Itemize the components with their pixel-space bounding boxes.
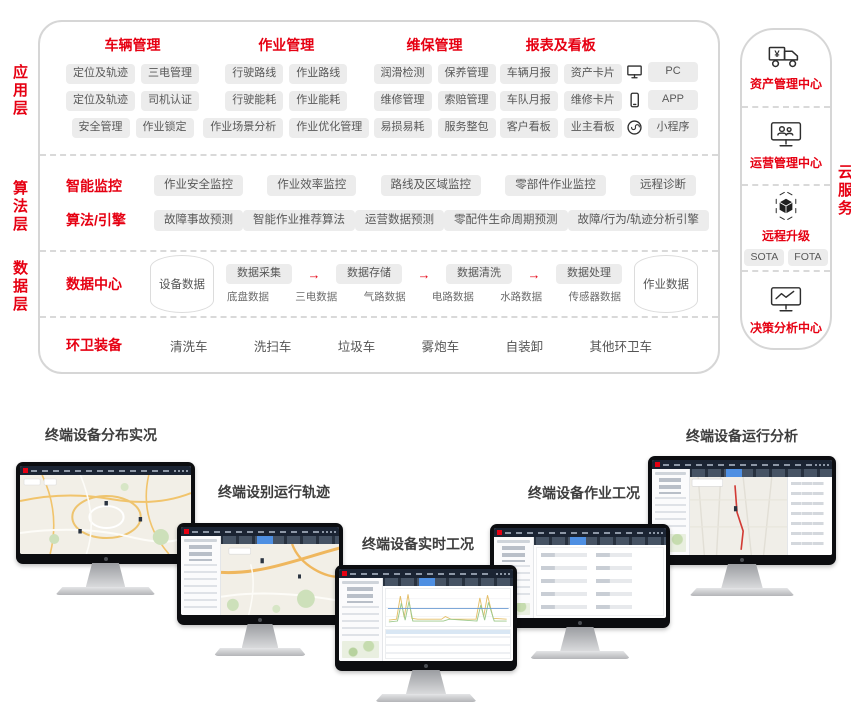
bezel-logo-dot xyxy=(258,618,262,622)
monitor-chart-icon xyxy=(768,285,804,314)
equipment-items: 清洗车 洗扫车 垃圾车 雾炮车 自装卸 其他环卫车 xyxy=(170,336,652,355)
feature-chip: 定位及轨迹 xyxy=(66,91,135,111)
screen-main xyxy=(383,578,514,661)
equipment-item: 清洗车 xyxy=(170,336,208,355)
algo-chip: 作业效率监控 xyxy=(267,175,356,196)
flow-chip: 数据存储 xyxy=(336,264,402,284)
algo-chip: 零部件作业监控 xyxy=(505,175,606,196)
feature-chip: 维修卡片 xyxy=(564,91,622,111)
feature-chip: 车队月报 xyxy=(500,91,558,111)
screen-main xyxy=(690,469,832,555)
monitor-users-icon xyxy=(768,120,804,149)
algo-chips: 故障事故预测 智能作业推荐算法 运营数据预测 零配件生命周期预测 故障/行为/轨… xyxy=(154,210,709,231)
feature-chip: 作业能耗 xyxy=(289,91,347,111)
device-row-app: APP xyxy=(626,90,698,110)
cube-icon xyxy=(769,190,803,222)
algo-chip: 故障/行为/轨迹分析引擎 xyxy=(568,210,709,231)
logo-mark xyxy=(497,530,502,535)
device-row-miniapp: 小程序 xyxy=(626,118,698,138)
screen-navbar xyxy=(20,466,191,475)
app-group-reports: 报表及看板 车辆月报资产卡片 车队月报维修卡片 客户看板业主看板 xyxy=(500,35,622,154)
feature-chip: 索赔管理 xyxy=(438,91,496,111)
menu-placeholder xyxy=(663,464,812,466)
feature-chip: 保养管理 xyxy=(438,64,496,84)
feature-chip: 车辆月报 xyxy=(500,64,558,84)
monitor-screen xyxy=(494,528,666,618)
app-group-maintenance: 维保管理 润滑检测保养管理 维修管理索赔管理 易损易耗服务整包 xyxy=(374,35,496,154)
data-table-placeholder xyxy=(385,629,512,659)
algo-chips: 作业安全监控 作业效率监控 路线及区域监控 零部件作业监控 远程诊断 xyxy=(154,175,696,196)
monitor-run-track xyxy=(177,523,343,656)
feature-chip: 作业路线 xyxy=(289,64,347,84)
menu-placeholder xyxy=(192,531,319,533)
screen-tabs xyxy=(690,469,832,477)
layer-label-data: 数据层 xyxy=(9,260,30,314)
map-graphic xyxy=(221,544,340,615)
detail-form-placeholder xyxy=(536,547,664,616)
sidebar-title-placeholder xyxy=(655,472,686,475)
monitor-bezel xyxy=(490,524,670,628)
device-chip: APP xyxy=(648,90,698,110)
sidebar-minimap xyxy=(342,641,379,658)
monitor-screen xyxy=(339,569,513,661)
algo-chip: 零配件生命周期预测 xyxy=(444,210,568,231)
bezel-logo-dot xyxy=(740,558,744,562)
pc-icon xyxy=(626,64,643,79)
row-title: 环卫装备 xyxy=(66,335,138,355)
algo-chip: 作业安全监控 xyxy=(154,175,243,196)
menu-placeholder xyxy=(505,532,646,534)
logo-mark xyxy=(342,571,347,576)
flow-chips: 数据采集 → 数据存储 → 数据清洗 → 数据处理 xyxy=(226,264,622,284)
cloud-section-title: 决策分析中心 xyxy=(750,319,822,336)
feature-chip: 作业锁定 xyxy=(136,118,194,138)
algo-chip: 运营数据预测 xyxy=(355,210,444,231)
user-area-placeholder xyxy=(496,573,510,575)
monitor-caption: 终端设备作业工况 xyxy=(528,483,640,503)
feature-chip: 润滑检测 xyxy=(374,64,432,84)
data-panel-placeholder xyxy=(787,477,832,555)
device-chip: PC xyxy=(648,62,698,82)
signal-chart xyxy=(385,588,512,627)
feature-chip: 作业场景分析 xyxy=(203,118,283,138)
cloud-section-title: 资产管理中心 xyxy=(750,75,822,92)
data-flow: 数据采集 → 数据存储 → 数据清洗 → 数据处理 底盘数据 三电数据 气路数据… xyxy=(226,264,622,304)
algo-chip: 远程诊断 xyxy=(630,175,696,196)
user-area-placeholder xyxy=(815,464,829,466)
monitor-stand-base xyxy=(530,651,631,659)
data-source: 三电数据 xyxy=(295,289,337,304)
menu-placeholder xyxy=(350,573,493,575)
screen-main xyxy=(534,537,666,618)
app-group-operation: 作业管理 行驶路线作业路线 行驶能耗作业能耗 作业场景分析作业优化管理 xyxy=(203,35,369,154)
screen-navbar xyxy=(652,460,832,469)
track-map-graphic xyxy=(690,477,787,555)
flow-arrow-icon: → xyxy=(528,267,541,282)
phone-icon xyxy=(626,92,643,108)
chip-grid: 润滑检测保养管理 维修管理索赔管理 易损易耗服务整包 xyxy=(374,64,496,138)
group-title: 报表及看板 xyxy=(526,35,596,55)
user-area-placeholder xyxy=(174,470,188,472)
screen-tabs xyxy=(383,578,514,586)
feature-chip: 定位及轨迹 xyxy=(66,64,135,84)
algo-row-engine: 算法/引擎 故障事故预测 智能作业推荐算法 运营数据预测 零配件生命周期预测 故… xyxy=(66,210,696,231)
cloud-section-upgrade: 远程升级 SOTA FOTA xyxy=(742,184,830,270)
sidebar-grid-placeholder xyxy=(347,587,373,603)
row-title: 数据中心 xyxy=(66,274,138,294)
equipment-item: 洗扫车 xyxy=(254,336,292,355)
cloud-section-asset: ¥ 资产管理中心 xyxy=(742,30,830,106)
algo-chip: 路线及区域监控 xyxy=(381,175,482,196)
flow-chip: 数据处理 xyxy=(556,264,622,284)
screen-navbar xyxy=(339,569,513,578)
feature-chip: 易损易耗 xyxy=(374,118,432,138)
job-data-store: 作业数据 xyxy=(634,255,698,313)
feature-chip: 行驶路线 xyxy=(225,64,283,84)
main-split xyxy=(690,477,832,555)
screen-sidebar xyxy=(339,578,383,661)
algo-chip: 故障事故预测 xyxy=(154,210,243,231)
device-column: PC APP 小程序 xyxy=(626,62,698,154)
device-chip: 小程序 xyxy=(648,118,698,138)
sota-chip: SOTA xyxy=(744,249,784,266)
monitor-caption: 终端设别运行轨迹 xyxy=(218,482,330,502)
sidebar-title-placeholder xyxy=(497,540,530,543)
upgrade-chips: SOTA FOTA xyxy=(744,249,827,266)
monitor-bezel xyxy=(16,462,195,564)
architecture-panel: 车辆管理 定位及轨迹三电管理 定位及轨迹司机认证 安全管理作业锁定 作业管理 行… xyxy=(38,20,720,374)
equipment-item: 自装卸 xyxy=(506,336,544,355)
group-title: 作业管理 xyxy=(258,35,314,55)
monitor-screen xyxy=(652,460,832,555)
monitor-track-analysis xyxy=(648,456,836,596)
sidebar-lines-placeholder xyxy=(184,564,217,612)
monitor-stand-base xyxy=(375,694,477,702)
row-title: 智能监控 xyxy=(66,176,142,196)
feature-chip: 行驶能耗 xyxy=(225,91,283,111)
monitor-stand-neck xyxy=(560,627,600,651)
logo-mark xyxy=(23,468,28,473)
flow-arrow-icon: → xyxy=(308,267,321,282)
application-band: 车辆管理 定位及轨迹三电管理 定位及轨迹司机认证 安全管理作业锁定 作业管理 行… xyxy=(40,22,718,156)
screen-body xyxy=(181,536,339,615)
sidebar-lines-placeholder xyxy=(342,606,379,638)
feature-chip: 安全管理 xyxy=(72,118,130,138)
layer-label-algorithm: 算法层 xyxy=(9,180,30,234)
data-band: 数据中心 设备数据 数据采集 → 数据存储 → 数据清洗 → 数据处理 底盘数据… xyxy=(40,252,718,318)
cloud-section-title: 运营管理中心 xyxy=(750,154,822,171)
screen-sidebar xyxy=(181,536,221,615)
screen-tabs xyxy=(221,536,340,544)
feature-chip: 作业优化管理 xyxy=(289,118,369,138)
user-area-placeholder xyxy=(322,531,336,533)
screen-main xyxy=(221,536,340,615)
monitor-stand-base xyxy=(214,648,307,656)
svg-text:¥: ¥ xyxy=(774,50,780,61)
map-graphic xyxy=(20,475,191,554)
bezel-logo-dot xyxy=(578,621,582,625)
monitor-stand-neck xyxy=(721,564,762,588)
data-source: 气路数据 xyxy=(364,289,406,304)
monitor-stand-neck xyxy=(406,670,446,694)
feature-chip: 客户看板 xyxy=(500,118,558,138)
screen-body xyxy=(652,469,832,555)
equipment-band: 环卫装备 清洗车 洗扫车 垃圾车 雾炮车 自装卸 其他环卫车 xyxy=(40,318,718,372)
data-source: 传感器数据 xyxy=(568,289,621,304)
logo-mark xyxy=(184,529,189,534)
monitor-caption: 终端设备运行分析 xyxy=(686,426,798,446)
flow-chip: 数据清洗 xyxy=(446,264,512,284)
fota-chip: FOTA xyxy=(788,249,827,266)
monitor-caption: 终端设备分布实况 xyxy=(45,425,157,445)
monitor-stand-neck xyxy=(86,563,125,587)
feature-chip: 司机认证 xyxy=(141,91,199,111)
app-group-vehicle: 车辆管理 定位及轨迹三电管理 定位及轨迹司机认证 安全管理作业锁定 xyxy=(66,35,199,154)
group-title: 维保管理 xyxy=(407,35,463,55)
cloud-section-operation: 运营管理中心 xyxy=(742,106,830,184)
monitor-stand-base xyxy=(689,588,794,596)
cloud-section-title: 远程升级 xyxy=(762,227,810,244)
screen-navbar xyxy=(181,527,339,536)
truck-yen-icon: ¥ xyxy=(767,43,805,70)
signal-chart-graphic xyxy=(386,589,511,626)
chip-grid: 定位及轨迹三电管理 定位及轨迹司机认证 安全管理作业锁定 xyxy=(66,64,199,138)
flow-arrow-icon: → xyxy=(418,267,431,282)
cloud-section-decision: 决策分析中心 xyxy=(742,270,830,348)
sidebar-grid-placeholder xyxy=(502,546,525,562)
monitor-screen xyxy=(20,466,191,554)
monitor-bezel xyxy=(335,565,517,671)
device-row-pc: PC xyxy=(626,62,698,82)
algo-chip: 智能作业推荐算法 xyxy=(243,210,355,231)
group-title: 车辆管理 xyxy=(105,35,161,55)
row-title: 算法/引擎 xyxy=(66,210,142,230)
algorithm-band: 智能监控 作业安全监控 作业效率监控 路线及区域监控 零部件作业监控 远程诊断 … xyxy=(40,156,718,252)
menu-placeholder xyxy=(31,470,171,472)
screen-navbar xyxy=(494,528,666,537)
layer-label-application: 应用层 xyxy=(9,64,30,118)
feature-chip: 服务整包 xyxy=(438,118,496,138)
bezel-logo-dot xyxy=(104,557,108,561)
cloud-services-column: ¥ 资产管理中心 运营管理中心 远程升级 SOTA xyxy=(740,28,832,350)
bezel-logo-dot xyxy=(424,664,428,668)
miniapp-icon xyxy=(626,119,643,136)
data-source: 电路数据 xyxy=(432,289,474,304)
monitor-realtime-status xyxy=(335,565,517,702)
page: 应用层 算法层 数据层 云服务 车辆管理 定位及轨迹三电管理 定位及轨迹司机认证… xyxy=(0,0,851,715)
data-source: 底盘数据 xyxy=(227,289,269,304)
data-sources: 底盘数据 三电数据 气路数据 电路数据 水路数据 传感器数据 xyxy=(226,289,622,304)
monitor-caption: 终端设备实时工况 xyxy=(362,534,474,554)
monitor-stand-neck xyxy=(242,624,279,648)
monitor-bezel xyxy=(648,456,836,565)
sidebar-title-placeholder xyxy=(184,539,217,542)
monitor-map-overview xyxy=(16,462,195,595)
sidebar-grid-placeholder xyxy=(659,478,681,494)
cloud-service-label: 云服务 xyxy=(834,164,851,218)
flow-chip: 数据采集 xyxy=(226,264,292,284)
sidebar-grid-placeholder xyxy=(189,545,212,561)
sidebar-title-placeholder xyxy=(342,581,379,584)
equipment-item: 垃圾车 xyxy=(338,336,376,355)
monitor-bezel xyxy=(177,523,343,625)
feature-chip: 资产卡片 xyxy=(564,64,622,84)
chip-grid: 行驶路线作业路线 行驶能耗作业能耗 作业场景分析作业优化管理 xyxy=(203,64,369,138)
monitor-stand-base xyxy=(55,587,155,595)
algo-row-monitoring: 智能监控 作业安全监控 作业效率监控 路线及区域监控 零部件作业监控 远程诊断 xyxy=(66,175,696,196)
logo-mark xyxy=(655,462,660,467)
data-source: 水路数据 xyxy=(500,289,542,304)
device-data-store: 设备数据 xyxy=(150,255,214,313)
equipment-item: 其他环卫车 xyxy=(589,336,652,355)
equipment-item: 雾炮车 xyxy=(422,336,460,355)
monitor-work-status xyxy=(490,524,670,659)
feature-chip: 维修管理 xyxy=(374,91,432,111)
screen-tabs xyxy=(534,537,666,545)
feature-chip: 三电管理 xyxy=(141,64,199,84)
user-area-placeholder xyxy=(649,532,663,534)
monitor-screen xyxy=(181,527,339,615)
chip-grid: 车辆月报资产卡片 车队月报维修卡片 客户看板业主看板 xyxy=(500,64,622,138)
screen-body xyxy=(494,537,666,618)
feature-chip: 业主看板 xyxy=(564,118,622,138)
screen-body xyxy=(339,578,513,661)
